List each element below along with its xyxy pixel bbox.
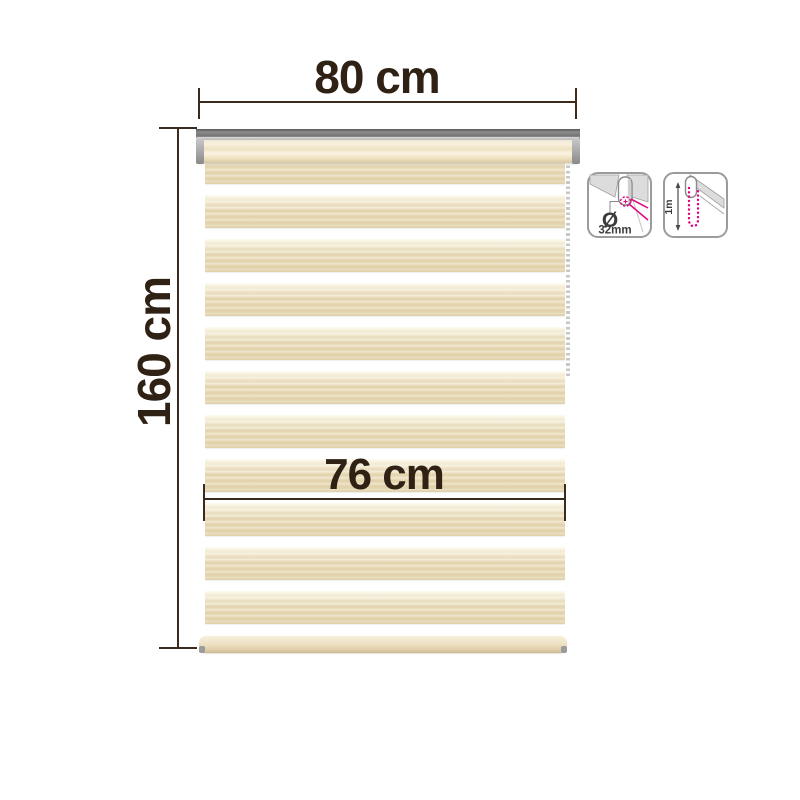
fabric-stripe (205, 591, 565, 624)
bottom-bar-cap-right (561, 646, 567, 653)
arrowhead-up (676, 182, 681, 188)
roll-end-cap-right (572, 138, 580, 164)
chain-drop-badge: 1m (663, 172, 728, 238)
bottom-bar (199, 636, 567, 653)
chain-drop-value: 1m (665, 199, 675, 214)
fabric-stripe (205, 163, 565, 184)
width-dimension-tick-right (575, 88, 577, 119)
height-dimension-label: 160 cm (127, 232, 177, 472)
arrowhead-down (676, 225, 681, 231)
fabric-width-dimension-tick-left (203, 484, 205, 521)
fabric-stripe (205, 327, 565, 360)
fabric-width-dimension-label: 76 cm (203, 450, 565, 500)
fabric-stripe (205, 283, 565, 316)
width-dimension-label: 80 cm (188, 50, 566, 104)
fabric-stripe (205, 195, 565, 228)
fabric-stripe (205, 239, 565, 272)
zebra-fabric (205, 163, 565, 625)
height-dimension-tick-bottom (159, 647, 197, 649)
tube-diameter-badge: Ø 32mm (587, 172, 652, 238)
fabric-width-dimension-line (204, 498, 566, 500)
wall-plane-left (590, 175, 619, 197)
height-dimension-line (177, 128, 179, 649)
bottom-bar-cap-left (199, 646, 205, 653)
tube-diameter-icon: Ø 32mm (589, 174, 649, 235)
height-dimension-tick-top (159, 127, 197, 129)
product-diagram: 80 cm 160 cm 76 cm Ø (0, 0, 800, 800)
bead-chain (566, 150, 570, 378)
fabric-stripe (205, 415, 565, 448)
width-dimension-line (199, 101, 577, 103)
fabric-stripe (205, 371, 565, 404)
roll-end-cap-left (196, 138, 204, 164)
diameter-value: 32mm (598, 225, 631, 236)
width-dimension-tick-left (198, 88, 200, 119)
tube-end-small (686, 177, 697, 198)
fabric-stripe (205, 547, 565, 580)
fabric-stripe (205, 503, 565, 536)
fabric-width-dimension-tick-right (564, 484, 566, 521)
fabric-roll (198, 140, 578, 163)
chain-drop-icon: 1m (665, 174, 725, 235)
